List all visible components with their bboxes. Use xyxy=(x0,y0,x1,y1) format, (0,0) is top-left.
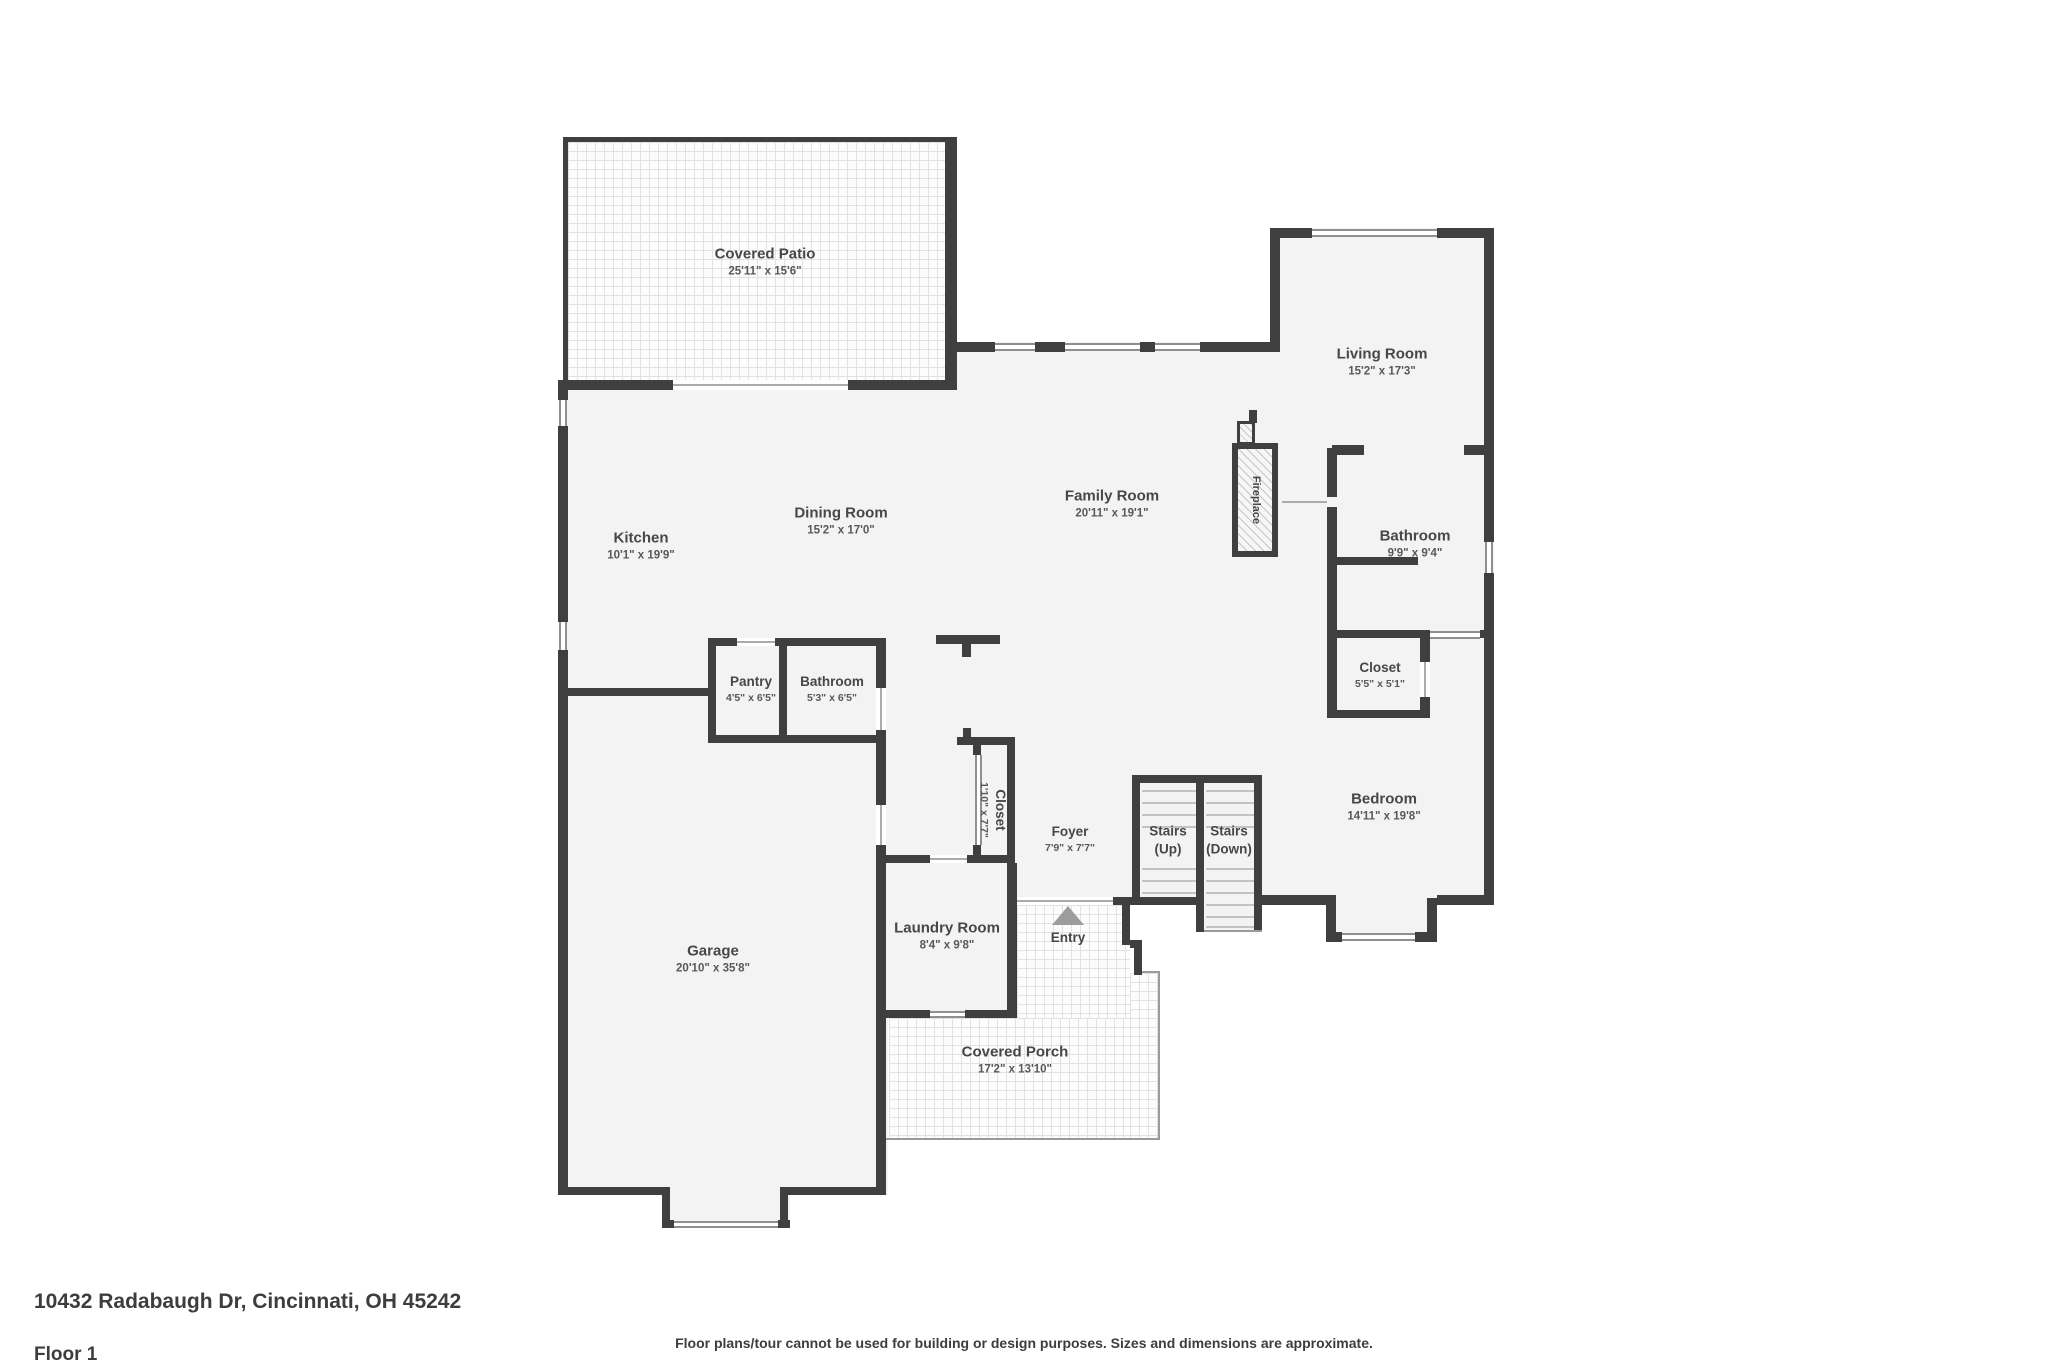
stair-tread xyxy=(1142,814,1196,816)
wall-segment xyxy=(973,743,981,755)
room-dims: 17'2" x 13'10" xyxy=(962,1062,1069,1078)
room-name: Entry xyxy=(1051,929,1086,947)
room-label-dining-room: Dining Room15'2" x 17'0" xyxy=(794,503,887,538)
room-name: Stairs xyxy=(1149,822,1187,840)
room-dims: 15'2" x 17'0" xyxy=(794,523,887,539)
room-name: Pantry xyxy=(726,673,776,691)
porch-border xyxy=(1204,930,1262,932)
room-dims: 4'5" x 6'5" xyxy=(726,691,776,705)
wall-segment xyxy=(936,635,1000,644)
room-label-kitchen: Kitchen10'1" x 19'9" xyxy=(607,528,675,563)
wall-segment xyxy=(1122,905,1130,945)
room-name: Bedroom xyxy=(1347,789,1420,809)
window xyxy=(1065,343,1140,351)
wall-segment xyxy=(1249,410,1257,423)
room-label-pantry: Pantry4'5" x 6'5" xyxy=(726,673,776,705)
wall-segment xyxy=(1035,342,1065,352)
stair-tread xyxy=(1206,926,1254,928)
room-label-garage: Garage20'10" x 35'8" xyxy=(676,941,750,976)
room-name: Laundry Room xyxy=(894,918,1000,938)
room-dims: 20'11" x 19'1" xyxy=(1065,506,1159,522)
wall-segment xyxy=(1134,948,1142,975)
stair-tread xyxy=(1206,790,1254,792)
wall-segment xyxy=(1484,573,1494,905)
stair-tread xyxy=(1206,814,1254,816)
wall-segment xyxy=(708,735,886,743)
wall-segment xyxy=(876,845,886,1195)
wall-segment xyxy=(662,1220,674,1228)
room-label-covered-porch: Covered Porch17'2" x 13'10" xyxy=(962,1042,1069,1077)
floor-area xyxy=(1336,905,1427,935)
room-label-bathroom-small: Bathroom5'3" x 6'5" xyxy=(800,673,864,705)
room-label-closet-bedroom: Closet5'5" x 5'1" xyxy=(1355,659,1405,691)
entry-label: Entry xyxy=(1051,929,1086,947)
stair-tread xyxy=(1206,916,1254,918)
porch-border xyxy=(1140,971,1160,973)
window xyxy=(1485,542,1493,573)
chimney xyxy=(1237,421,1255,445)
wall-segment xyxy=(558,380,568,400)
wall-segment xyxy=(558,650,568,1195)
door-line xyxy=(1424,662,1426,697)
wall-segment xyxy=(1326,932,1342,942)
room-dims: 25'11" x 15'6" xyxy=(715,264,816,280)
wall-segment xyxy=(1437,895,1494,905)
wall-segment xyxy=(1420,630,1430,662)
window xyxy=(930,1011,965,1018)
stair-tread xyxy=(1206,892,1254,894)
room-name: Fireplace xyxy=(1249,476,1263,524)
entry-arrow-icon xyxy=(1052,906,1084,925)
door-line xyxy=(930,858,967,860)
room-label-family-room: Family Room20'11" x 19'1" xyxy=(1065,486,1159,521)
room-name: Family Room xyxy=(1065,486,1159,506)
wall-segment xyxy=(1130,940,1142,948)
room-dims: 15'2" x 17'3" xyxy=(1337,364,1428,380)
room-name: Bathroom xyxy=(1380,526,1451,546)
room-dims: 9'9" x 9'4" xyxy=(1380,546,1451,562)
wall-segment xyxy=(965,1010,1017,1018)
room-name: Covered Porch xyxy=(962,1042,1069,1062)
door-line xyxy=(880,688,882,730)
room-dims: 1'10" x 7'7" xyxy=(977,782,991,838)
room-name: Garage xyxy=(676,941,750,961)
wall-segment xyxy=(1420,697,1430,718)
room-name: (Up) xyxy=(1149,840,1187,858)
wall-segment xyxy=(876,638,886,688)
door-line xyxy=(737,641,775,643)
door-line xyxy=(1282,501,1327,503)
stair-tread xyxy=(1206,880,1254,882)
porch-border xyxy=(1158,971,1160,1140)
room-name: Stairs xyxy=(1206,822,1252,840)
room-label-laundry-room: Laundry Room8'4" x 9'8" xyxy=(894,918,1000,953)
wall-segment xyxy=(1464,445,1494,455)
wall-segment xyxy=(1480,630,1494,638)
wall-segment xyxy=(945,137,957,390)
wall-segment xyxy=(1007,863,1017,1018)
wall-segment xyxy=(1110,897,1204,905)
porch-border xyxy=(886,1138,1160,1140)
room-dims: 5'3" x 6'5" xyxy=(800,691,864,705)
stair-tread xyxy=(1142,868,1196,870)
room-label-covered-patio: Covered Patio25'11" x 15'6" xyxy=(715,244,816,279)
room-dims: 14'11" x 19'8" xyxy=(1347,809,1420,825)
wall-segment xyxy=(962,644,971,657)
wall-segment xyxy=(1330,710,1430,718)
room-dims: 7'9" x 7'7" xyxy=(1045,841,1095,855)
window xyxy=(559,400,567,426)
stair-tread xyxy=(1206,904,1254,906)
wall-segment xyxy=(1254,895,1336,905)
room-name: Covered Patio xyxy=(715,244,816,264)
wall-segment xyxy=(957,737,1015,745)
window xyxy=(1312,229,1437,237)
stair-tread xyxy=(1142,892,1196,894)
room-name: (Down) xyxy=(1206,840,1252,858)
wall-segment xyxy=(558,426,568,622)
garage-door xyxy=(674,1221,780,1228)
room-label-living-room: Living Room15'2" x 17'3" xyxy=(1337,344,1428,379)
room-dims: 10'1" x 19'9" xyxy=(607,548,675,564)
door-line xyxy=(880,805,882,845)
room-label-bathroom-main: Bathroom9'9" x 9'4" xyxy=(1380,526,1451,561)
wall-segment xyxy=(563,688,708,696)
stair-tread xyxy=(1142,802,1196,804)
covered-porch-area xyxy=(1130,973,1160,1140)
fireplace-label: Fireplace xyxy=(1249,476,1263,524)
room-label-bedroom: Bedroom14'11" x 19'8" xyxy=(1347,789,1420,824)
room-name: Closet xyxy=(1355,659,1405,677)
wall-segment xyxy=(1327,448,1337,497)
floor-area xyxy=(1270,228,1494,455)
wall-segment xyxy=(1254,775,1262,932)
wall-segment xyxy=(878,1010,930,1018)
room-name: Bathroom xyxy=(800,673,864,691)
window xyxy=(995,343,1035,351)
wall-segment xyxy=(779,638,787,743)
wall-segment xyxy=(1427,898,1437,942)
wall-segment xyxy=(563,380,673,390)
stair-tread xyxy=(1142,790,1196,792)
room-dims: 5'5" x 5'1" xyxy=(1355,677,1405,691)
wall-segment xyxy=(1484,228,1494,542)
room-dims: 8'4" x 9'8" xyxy=(894,938,1000,954)
wall-segment xyxy=(848,380,957,390)
window xyxy=(1430,631,1480,639)
room-name: Kitchen xyxy=(607,528,675,548)
disclaimer-text: Floor plans/tour cannot be used for buil… xyxy=(0,1335,2048,1351)
window xyxy=(1155,343,1200,351)
wall-segment xyxy=(1327,507,1337,718)
covered-porch-area xyxy=(889,1018,1130,1140)
room-label-foyer: Foyer7'9" x 7'7" xyxy=(1045,823,1095,855)
wall-segment xyxy=(1200,342,1280,352)
room-label-closet-foyer: Closet1'10" x 7'7" xyxy=(977,782,1009,838)
room-name: Living Room xyxy=(1337,344,1428,364)
room-name: Dining Room xyxy=(794,503,887,523)
wall-segment xyxy=(1132,775,1140,905)
wall-segment xyxy=(967,855,1015,863)
stairs-down-label: Stairs(Down) xyxy=(1206,822,1252,857)
stair-tread xyxy=(1206,868,1254,870)
room-name: Foyer xyxy=(1045,823,1095,841)
wall-segment xyxy=(1196,775,1204,932)
window xyxy=(1342,933,1415,941)
window xyxy=(559,622,567,650)
wall-segment xyxy=(1140,342,1155,352)
stair-tread xyxy=(1206,802,1254,804)
stair-tread xyxy=(1142,880,1196,882)
room-name: Closet xyxy=(991,782,1009,838)
wall-segment xyxy=(558,1187,670,1195)
wall-segment xyxy=(945,342,995,352)
wall-segment xyxy=(775,638,876,646)
wall-segment xyxy=(963,728,971,737)
floor-plan: Covered Patio25'11" x 15'6" Living Room1… xyxy=(0,0,2048,1365)
wall-segment xyxy=(780,1187,886,1195)
wall-segment xyxy=(1330,630,1430,638)
wall-segment xyxy=(1270,228,1280,352)
address-text: 10432 Radabaugh Dr, Cincinnati, OH 45242 xyxy=(34,1290,461,1314)
door-line xyxy=(673,384,848,386)
room-dims: 20'10" x 35'8" xyxy=(676,961,750,977)
stairs-up-label: Stairs(Up) xyxy=(1149,822,1187,857)
wall-segment xyxy=(708,638,716,743)
door-line xyxy=(1015,900,1113,902)
